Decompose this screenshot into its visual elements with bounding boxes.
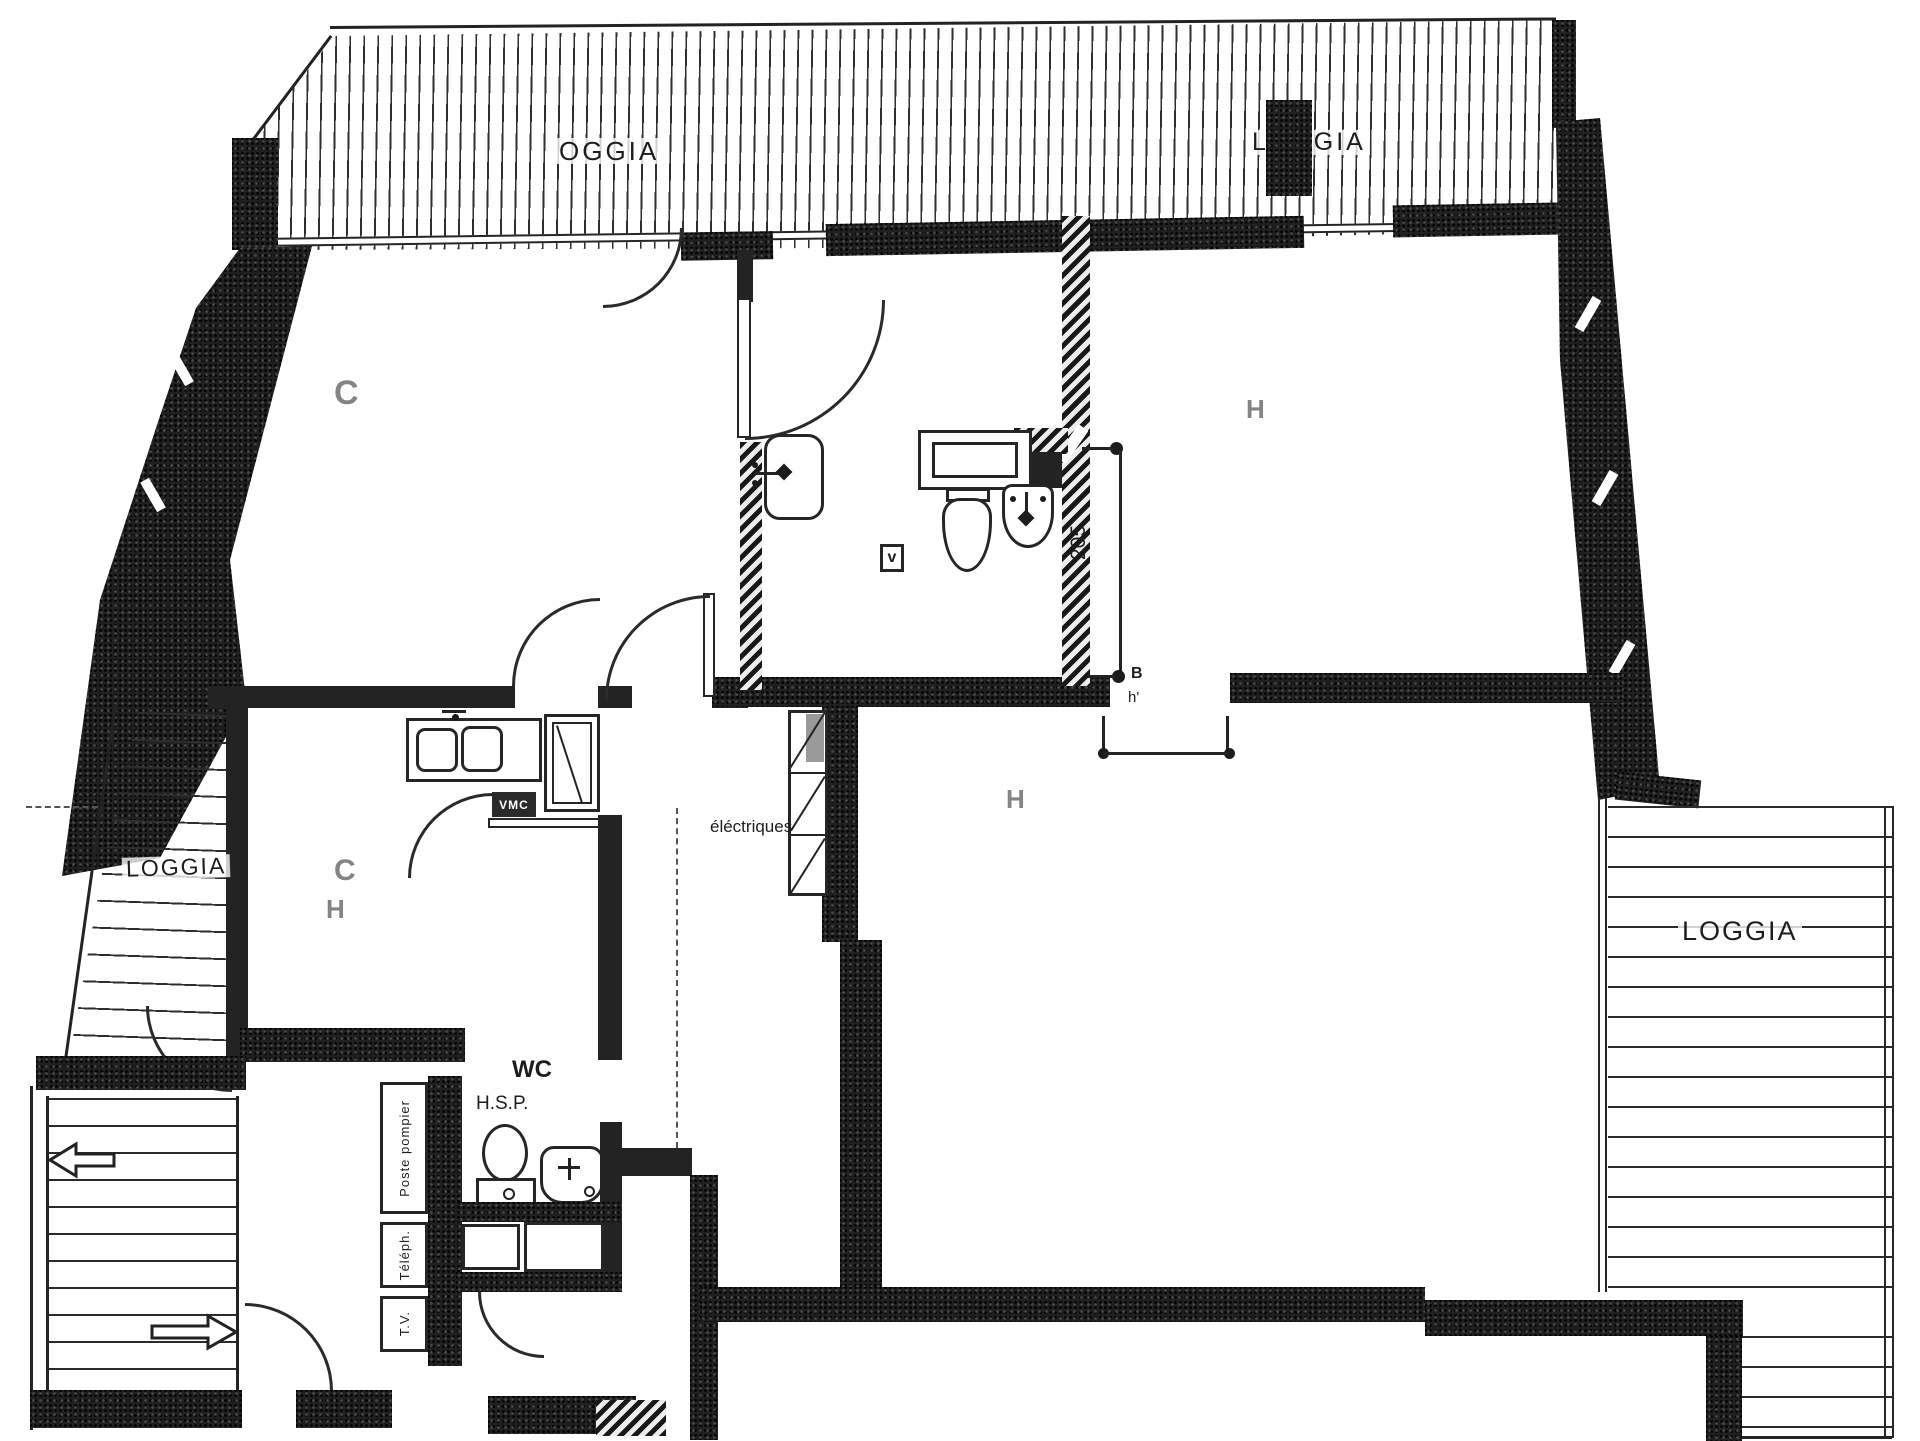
bathroom-wall-stub <box>737 250 753 302</box>
wc-lower-wall <box>456 1272 622 1292</box>
entrance-door-arc <box>245 1303 333 1391</box>
wc-bowl <box>942 498 992 572</box>
kitchen-letter-h: H <box>326 896 345 922</box>
stairs-bottom-wall <box>30 1390 242 1428</box>
kitchen-letter-c: C <box>334 856 356 886</box>
axis-line-vertical <box>676 808 678 1148</box>
service-column-wall <box>428 1076 462 1366</box>
right-loggia-hatch-lower <box>1742 1336 1892 1440</box>
wc-washbasin <box>540 1146 604 1204</box>
bathroom-door-arc <box>745 300 885 440</box>
living-bottom-wall-right <box>1425 1300 1743 1336</box>
right-loggia-corner-wall <box>1706 1336 1742 1441</box>
cabinet-divider <box>790 834 826 836</box>
vent-mark-label: v <box>888 550 897 566</box>
top-wall-segment <box>1393 203 1562 238</box>
bedroom1-letter: C <box>334 376 359 410</box>
vmc-label: VMC <box>499 799 529 811</box>
bedroom2-letter: H <box>1246 396 1265 422</box>
wc-label: WC <box>512 1058 552 1082</box>
vmc-badge: VMC <box>492 792 536 817</box>
living-bottom-wall <box>700 1287 1425 1322</box>
dim-line-vertical <box>1119 450 1122 678</box>
hall-divider-wall <box>840 940 882 1294</box>
right-loggia-inner-edge <box>1598 798 1607 1292</box>
top-left-loggia-label: OGGIA <box>555 138 663 164</box>
kitchen-sink-right-bowl <box>461 726 503 772</box>
right-loggia-hatch <box>1608 806 1892 1294</box>
bidet-faucet-dot <box>1040 496 1046 502</box>
top-wall-segment <box>681 231 773 261</box>
washbasin <box>764 434 824 520</box>
wc-basin-faucet-arm <box>558 1166 580 1169</box>
dim-point-b: B <box>1131 666 1143 682</box>
right-loggia-label: LOGGIA <box>1678 918 1802 945</box>
left-loggia-label: LOGGIA <box>122 854 231 881</box>
right-loggia-top-wall <box>1615 772 1701 809</box>
faucet-dot <box>752 480 758 486</box>
kitchen-shelf <box>488 818 600 828</box>
plan-left-boundary <box>30 1086 33 1430</box>
right-loggia-bottom-line <box>1742 1436 1892 1439</box>
dim-205-label: 205 <box>1068 525 1089 560</box>
bottom-wall-hatched <box>596 1400 666 1436</box>
dim-tick <box>1102 716 1105 752</box>
kitchen-right-wall <box>598 815 622 1060</box>
tv-box: T.V. <box>380 1296 428 1352</box>
bathroom-left-wall <box>740 442 762 690</box>
interior-wall <box>208 686 515 708</box>
hsp-label: H.S.P. <box>476 1094 528 1113</box>
dim-tick <box>1226 716 1229 752</box>
kitchen-faucet-arm <box>442 710 466 713</box>
hall-door-arc <box>605 595 710 700</box>
cabinet-divider <box>790 772 826 774</box>
telephone-box: Téléph. <box>380 1222 428 1288</box>
top-wall-segment <box>232 138 278 250</box>
bathroom-bottom-wall <box>712 677 1110 707</box>
dim-line-horizontal <box>1103 752 1229 755</box>
stairs-arrow-up <box>46 1140 116 1180</box>
faucet-dot <box>752 462 758 468</box>
wc-door-arc <box>478 1292 544 1358</box>
utility-box <box>462 1224 520 1270</box>
right-loggia-outer-edge <box>1884 806 1894 1438</box>
wc-toilet-seat <box>482 1124 528 1182</box>
utility-box <box>524 1222 604 1272</box>
wc-basin-faucet-arm <box>568 1158 571 1180</box>
dim-point-h: h' <box>1128 690 1139 705</box>
top-wall-segment <box>1266 100 1312 196</box>
top-wall-segment <box>1552 20 1576 128</box>
wc-basin-drain <box>584 1186 595 1197</box>
bedroom1-door-arc <box>512 598 600 686</box>
bedroom1-loggia-door-arc <box>603 228 683 308</box>
kitchen-bottom-wall <box>240 1028 465 1062</box>
wc-cistern-inner <box>932 442 1018 478</box>
telephone-label: Téléph. <box>398 1230 411 1280</box>
dim-tick <box>1088 675 1114 678</box>
electrical-label: éléctriques <box>710 818 792 835</box>
axis-line-horizontal <box>26 806 98 808</box>
dim-tick <box>1082 447 1112 450</box>
bidet-faucet-dot <box>1010 496 1016 502</box>
wc-toilet-button <box>503 1188 515 1200</box>
vent-mark-box: v <box>880 544 904 572</box>
poste-pompier-label: Poste pompier <box>398 1100 411 1197</box>
poste-pompier-box: Poste pompier <box>380 1082 428 1214</box>
kitchen-sink-left-bowl <box>416 728 458 772</box>
bedroom2-bottom-wall <box>1230 673 1622 703</box>
floor-plan: OGGIA LOGGIA LOGGIA <box>0 0 1920 1441</box>
tv-label: T.V. <box>398 1311 411 1336</box>
hall-lower-wall <box>622 1148 692 1176</box>
stairs-arrow-down <box>148 1312 240 1352</box>
bathroom-niche-stub <box>1032 452 1062 488</box>
kitchen-door-arc <box>408 793 493 878</box>
living-letter: H <box>1006 786 1025 812</box>
wc-mid-wall <box>458 1202 622 1222</box>
kitchen-faucet-dot <box>452 714 459 721</box>
bottom-wall-segment <box>296 1390 392 1428</box>
stairs-top-wall <box>36 1056 246 1090</box>
